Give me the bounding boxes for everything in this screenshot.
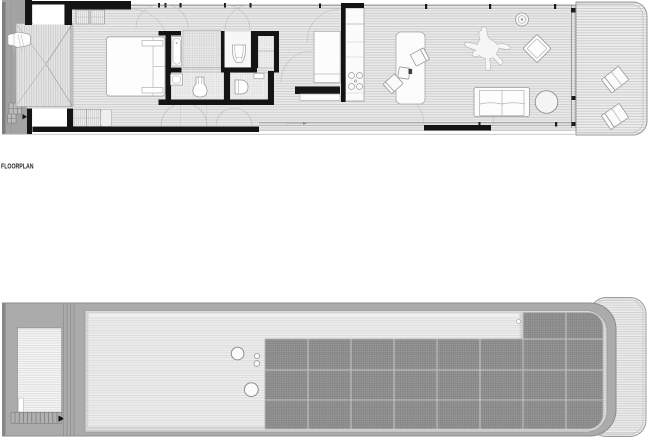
svg-text:FLOORPLAN: FLOORPLAN: [1, 162, 34, 171]
